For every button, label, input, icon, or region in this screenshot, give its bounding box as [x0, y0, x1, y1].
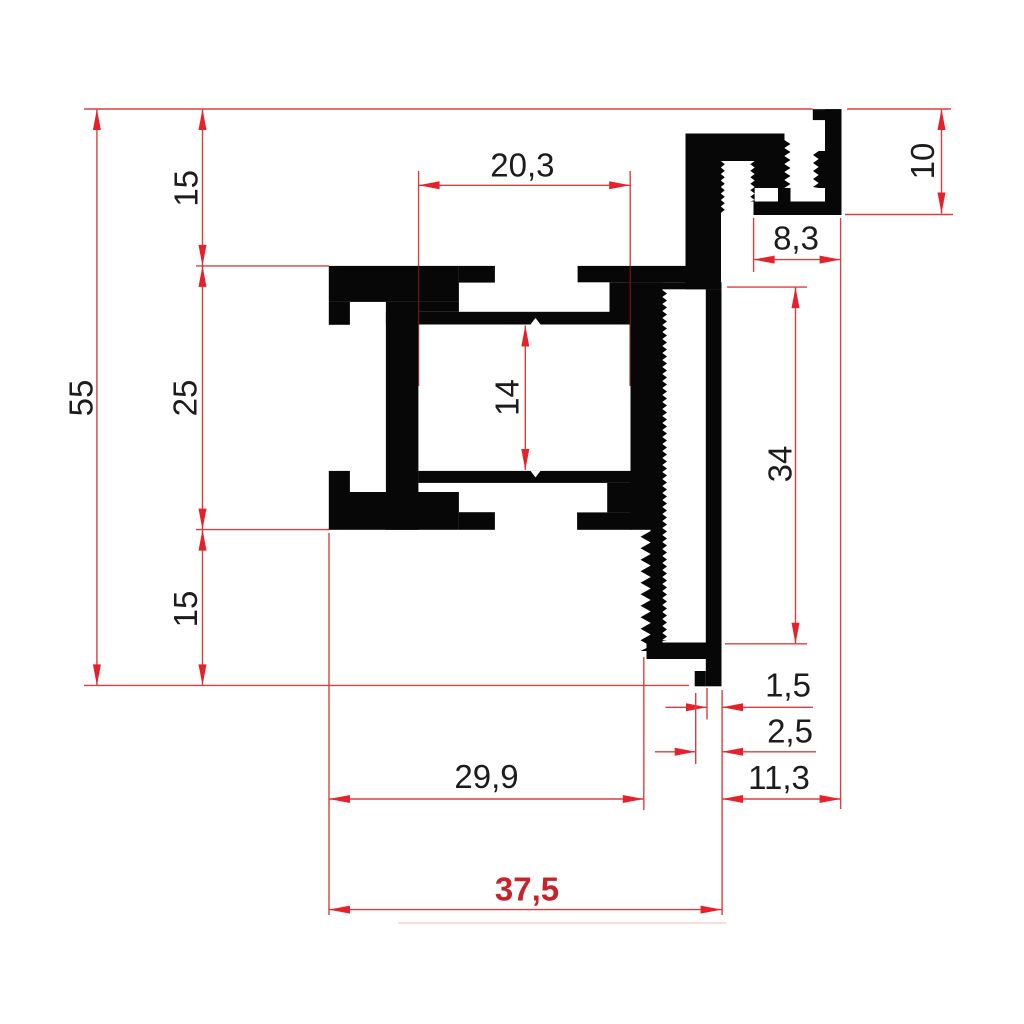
svg-text:37,5: 37,5: [495, 871, 559, 908]
svg-text:15: 15: [167, 170, 204, 207]
svg-text:10: 10: [904, 143, 941, 180]
svg-text:2,5: 2,5: [767, 713, 813, 750]
svg-text:1,5: 1,5: [765, 667, 811, 704]
svg-text:14: 14: [489, 379, 526, 416]
svg-text:15: 15: [167, 591, 204, 628]
svg-text:8,3: 8,3: [773, 220, 819, 257]
svg-text:55: 55: [62, 380, 99, 417]
svg-text:20,3: 20,3: [490, 147, 554, 184]
svg-text:34: 34: [762, 446, 799, 483]
svg-text:11,3: 11,3: [748, 759, 810, 796]
svg-text:25: 25: [167, 380, 204, 417]
svg-text:29,9: 29,9: [454, 758, 518, 795]
